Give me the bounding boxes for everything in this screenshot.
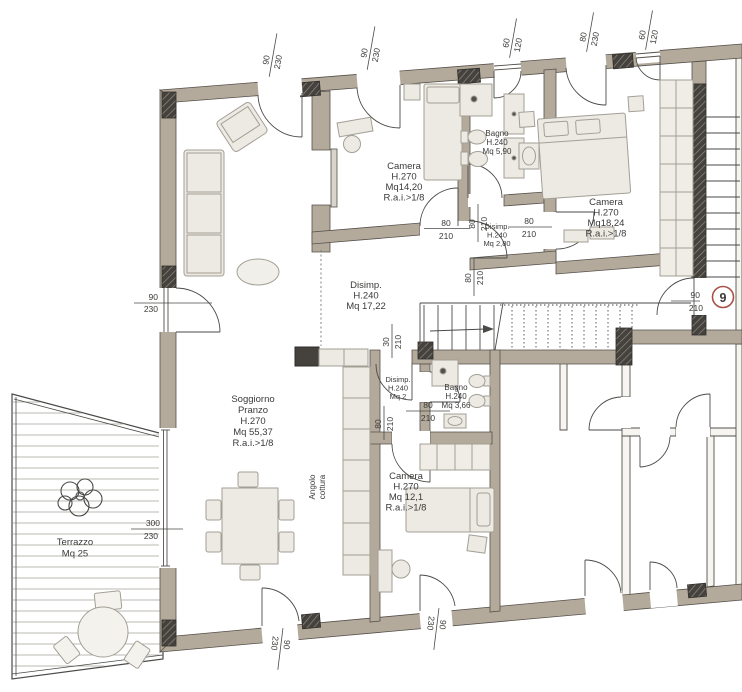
svg-text:Disimp.: Disimp. — [350, 280, 382, 291]
dim-win-ne-small: 60 120 — [635, 8, 664, 51]
svg-text:80: 80 — [441, 218, 451, 228]
kitchen-counter — [295, 347, 370, 575]
svg-text:80: 80 — [524, 216, 534, 226]
label-angolo-cottura: Angolo cottura — [308, 474, 327, 499]
svg-text:80: 80 — [423, 400, 433, 410]
svg-text:Mq 12,1: Mq 12,1 — [389, 492, 423, 503]
svg-text:H.270: H.270 — [391, 172, 416, 183]
dim-win-ne: 80 230 — [576, 10, 605, 53]
camera-sud-furniture — [378, 444, 494, 592]
svg-text:90: 90 — [260, 54, 272, 65]
rug — [237, 259, 279, 285]
svg-text:230: 230 — [425, 616, 437, 632]
svg-text:80: 80 — [463, 273, 473, 283]
svg-text:Mq14,20: Mq14,20 — [386, 182, 423, 193]
label-disimp-sud: Disimp. H.240 Mq 2 — [385, 375, 410, 401]
label-soggiorno: Soggiorno Pranzo H.270 Mq 55,37 R.a.i.>1… — [231, 394, 274, 449]
svg-text:90: 90 — [437, 619, 448, 630]
svg-text:Mq 55,37: Mq 55,37 — [233, 427, 273, 438]
dim-win-nw-1: 90 230 — [258, 32, 287, 79]
svg-text:60: 60 — [636, 29, 648, 40]
svg-text:90: 90 — [149, 292, 159, 302]
svg-text:Mq 17,22: Mq 17,22 — [346, 301, 386, 312]
svg-text:Angolo: Angolo — [308, 474, 317, 499]
svg-text:300: 300 — [146, 518, 160, 528]
sliding-door-leaf — [331, 149, 337, 207]
svg-text:Mq 2,80: Mq 2,80 — [483, 239, 510, 248]
svg-text:Camera: Camera — [589, 197, 624, 208]
unit-number: 9 — [720, 291, 727, 305]
svg-text:230: 230 — [589, 31, 601, 47]
svg-text:Mq 3,66: Mq 3,66 — [442, 401, 471, 410]
stair-core-wall — [692, 84, 706, 290]
svg-text:210: 210 — [439, 231, 453, 241]
svg-text:H.270: H.270 — [393, 482, 418, 493]
svg-text:Bagno: Bagno — [444, 383, 468, 392]
svg-text:80: 80 — [577, 31, 589, 42]
label-camera-nw: Camera H.270 Mq14,20 R.a.i.>1/8 — [384, 161, 425, 204]
dim-win-nw-2: 90 230 — [356, 25, 385, 72]
svg-text:H.240: H.240 — [445, 392, 467, 401]
label-bagno-nord: Bagno H.240 Mq 5,90 — [483, 129, 512, 156]
svg-text:210: 210 — [385, 417, 395, 431]
svg-text:Bagno: Bagno — [485, 129, 509, 138]
svg-text:cottura: cottura — [318, 474, 327, 499]
floor-plan-page: Camera H.270 Mq14,20 R.a.i.>1/8 Bagno H.… — [0, 0, 742, 692]
svg-text:H.270: H.270 — [240, 416, 265, 427]
dim-win-bagno-n: 60 120 — [499, 16, 528, 59]
svg-text:R.a.i.>1/8: R.a.i.>1/8 — [586, 229, 627, 240]
label-disimpegno: Disimp. H.240 Mq 17,22 — [346, 280, 386, 312]
room-name: Camera — [387, 161, 422, 172]
sofa — [184, 150, 224, 276]
svg-text:90: 90 — [358, 47, 370, 58]
svg-text:210: 210 — [475, 271, 485, 285]
svg-text:120: 120 — [648, 29, 660, 45]
svg-text:120: 120 — [512, 37, 524, 53]
unit-number-badge: 9 — [713, 287, 734, 308]
svg-text:210: 210 — [479, 217, 489, 231]
svg-text:Soggiorno: Soggiorno — [231, 394, 274, 405]
svg-text:Terrazzo: Terrazzo — [57, 537, 93, 548]
svg-text:230: 230 — [370, 47, 382, 63]
svg-text:230: 230 — [144, 531, 158, 541]
label-camera-sud: Camera H.270 Mq 12,1 R.a.i.>1/8 — [386, 471, 427, 514]
svg-text:230: 230 — [269, 636, 281, 652]
svg-text:210: 210 — [421, 413, 435, 423]
svg-text:210: 210 — [689, 303, 703, 313]
bench — [564, 230, 588, 242]
svg-text:90: 90 — [691, 290, 701, 300]
svg-text:Mq 25: Mq 25 — [62, 549, 88, 560]
dining-table-set — [206, 472, 294, 580]
svg-text:R.a.i.>1/8: R.a.i.>1/8 — [386, 503, 427, 514]
svg-text:230: 230 — [272, 54, 284, 70]
svg-text:60: 60 — [500, 37, 512, 48]
label-terrazzo: Terrazzo Mq 25 — [57, 537, 93, 560]
floor-plan-drawing: Camera H.270 Mq14,20 R.a.i.>1/8 Bagno H.… — [0, 0, 742, 692]
svg-text:R.a.i.>1/8: R.a.i.>1/8 — [384, 193, 425, 204]
svg-text:30: 30 — [381, 337, 391, 347]
svg-text:H.240: H.240 — [353, 291, 378, 302]
svg-text:R.a.i.>1/8: R.a.i.>1/8 — [233, 438, 274, 449]
svg-text:Pranzo: Pranzo — [238, 405, 268, 416]
svg-text:Mq 5,90: Mq 5,90 — [483, 147, 512, 156]
svg-text:230: 230 — [144, 304, 158, 314]
dim-pass-corridoio: 30 210 — [381, 324, 403, 358]
label-bagno-sud: Bagno H.240 Mq 3,66 — [442, 383, 471, 410]
svg-text:80: 80 — [373, 419, 383, 429]
label-camera-ne: Camera H.270 Mq18,24 R.a.i.>1/8 — [586, 197, 627, 240]
svg-text:210: 210 — [393, 335, 403, 349]
wardrobe-camera-ne — [660, 80, 693, 276]
svg-text:210: 210 — [522, 229, 536, 239]
svg-text:Mq 2: Mq 2 — [390, 392, 407, 401]
svg-text:H.270: H.270 — [593, 208, 618, 219]
svg-text:Mq18,24: Mq18,24 — [588, 218, 625, 229]
svg-text:H.240: H.240 — [486, 138, 508, 147]
svg-text:90: 90 — [281, 639, 292, 650]
stair-right-flight — [706, 117, 740, 277]
svg-text:80: 80 — [467, 219, 477, 229]
svg-text:Camera: Camera — [389, 471, 424, 482]
